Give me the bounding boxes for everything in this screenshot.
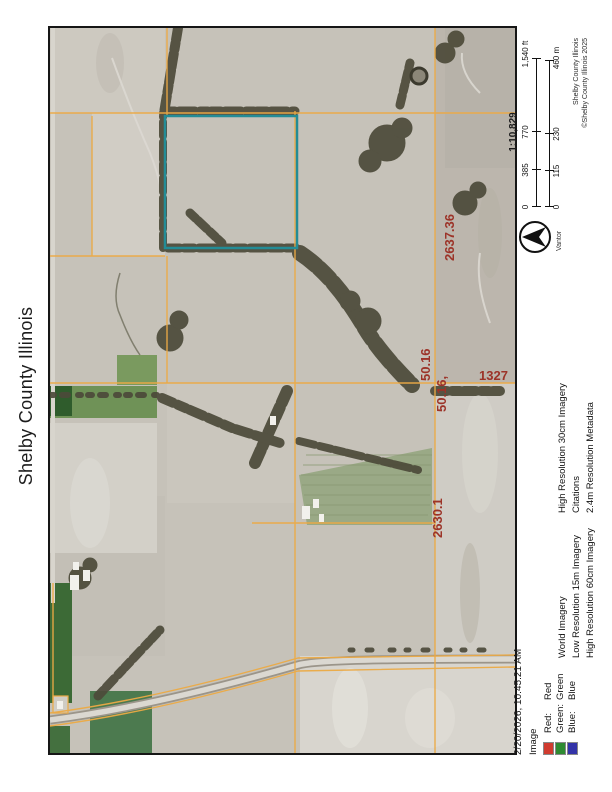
north-arrow-icon <box>518 220 552 254</box>
landscape-canvas: Shelby County Illinois <box>0 0 612 792</box>
legend-row-red: Red: Red <box>542 674 554 755</box>
scalebar-label: 770 <box>521 115 530 149</box>
credit-line: Shelby County Illinois <box>572 38 581 180</box>
legend-item: World Imagery <box>556 528 570 658</box>
legend-row-blue: Blue: Blue <box>566 674 578 755</box>
scalebar-meters: 0 115 230 460 m <box>543 47 563 207</box>
legend-image-layer: Image Red: Red Green: Green Blue: Blue <box>528 674 578 755</box>
print-page: Shelby County Illinois <box>0 0 612 792</box>
band-value: Green <box>555 674 566 700</box>
parcel-label: 2630.1 <box>430 498 445 538</box>
map-frame: 2637.36 50.16 50.16, 1327 2630.1 <box>48 26 517 755</box>
scalebar-label: 1,540 ft <box>521 32 530 76</box>
map-credits: Shelby County Illinois ©Shelby County Il… <box>572 38 590 180</box>
scalebar-rule <box>536 58 537 207</box>
band-label: Red: <box>543 700 554 733</box>
scalebar-tick <box>532 58 541 59</box>
page-title: Shelby County Illinois <box>16 0 37 792</box>
band-value: Blue <box>567 681 578 700</box>
pond <box>411 68 427 84</box>
parcel-label: 1327 <box>479 368 508 383</box>
legend-imagery-sublayers: High Resolution 30cm Imagery Citations 2… <box>556 383 598 513</box>
legend-item: 2.4m Resolution Metadata <box>584 383 598 513</box>
parcel-label: 50.16, <box>434 376 449 412</box>
scalebar-label: 0 <box>552 190 561 224</box>
scalebar-tick <box>532 169 541 170</box>
legend-item: Low Resolution 15m Imagery <box>570 528 584 658</box>
legend-item: Citations <box>570 383 584 513</box>
band-label: Green: <box>555 700 566 733</box>
parcel-label: 2637.36 <box>442 214 457 261</box>
scalebar-label: 115 <box>552 154 561 188</box>
imagery-credit-label: Vantor <box>556 231 563 251</box>
legend-world-imagery: World Imagery Low Resolution 15m Imagery… <box>556 528 598 658</box>
scalebar-label: 230 <box>552 117 561 151</box>
parcel-label: 50.16 <box>418 348 433 381</box>
credit-line: ©Shelby County Illinois 2025 <box>581 38 590 180</box>
scalebar-tick <box>532 131 541 132</box>
scalebar-tick <box>532 206 541 207</box>
export-datetime: 2/20/2026, 10:45:21 AM <box>513 649 524 755</box>
legend-item: High Resolution 30cm Imagery <box>556 383 570 513</box>
scalebar-label: 460 m <box>552 38 561 78</box>
aerial-imagery: 2637.36 50.16 50.16, 1327 2630.1 <box>50 28 515 753</box>
scalebar-label: 0 <box>521 190 530 224</box>
green-swatch-icon <box>555 742 566 755</box>
scalebar-label: 385 <box>521 153 530 187</box>
band-label: Blue: <box>567 700 578 733</box>
legend-layer-title: Image <box>528 674 539 755</box>
scale-ratio: 1:10,829 <box>508 57 519 207</box>
red-swatch-icon <box>543 742 554 755</box>
legend-row-green: Green: Green <box>554 674 566 755</box>
legend-item: High Resolution 60cm Imagery <box>584 528 598 658</box>
band-value: Red <box>543 683 554 700</box>
scalebar-rule <box>549 61 550 207</box>
blue-swatch-icon <box>567 742 578 755</box>
